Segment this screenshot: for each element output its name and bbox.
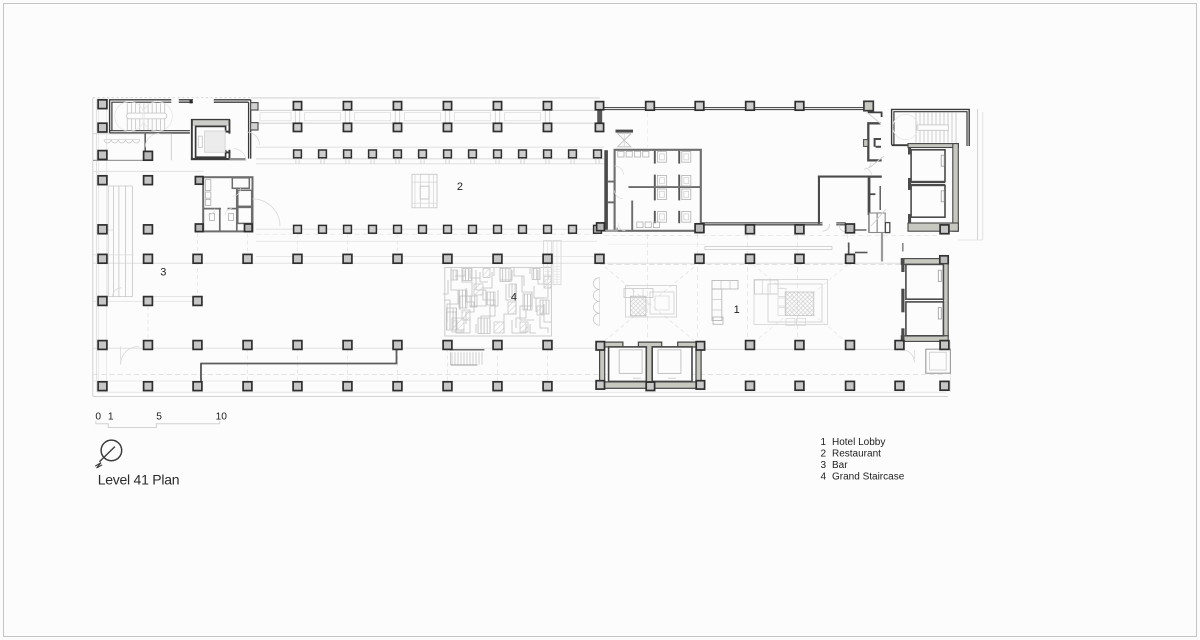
svg-text:4: 4 <box>511 292 517 304</box>
svg-text:Bar: Bar <box>832 460 848 471</box>
svg-text:Hotel Lobby: Hotel Lobby <box>832 437 885 448</box>
svg-text:1: 1 <box>108 412 114 423</box>
svg-text:Grand Staircase: Grand Staircase <box>832 471 905 482</box>
svg-text:5: 5 <box>156 412 162 423</box>
svg-text:Restaurant: Restaurant <box>832 448 881 459</box>
svg-text:Level 41 Plan: Level 41 Plan <box>98 472 180 488</box>
svg-text:2: 2 <box>821 448 827 459</box>
svg-text:4: 4 <box>821 471 827 482</box>
svg-text:1: 1 <box>821 437 827 448</box>
svg-text:3: 3 <box>160 267 166 279</box>
svg-text:10: 10 <box>216 412 228 423</box>
svg-text:2: 2 <box>457 181 463 193</box>
svg-text:1: 1 <box>734 304 740 316</box>
svg-text:3: 3 <box>821 460 827 471</box>
